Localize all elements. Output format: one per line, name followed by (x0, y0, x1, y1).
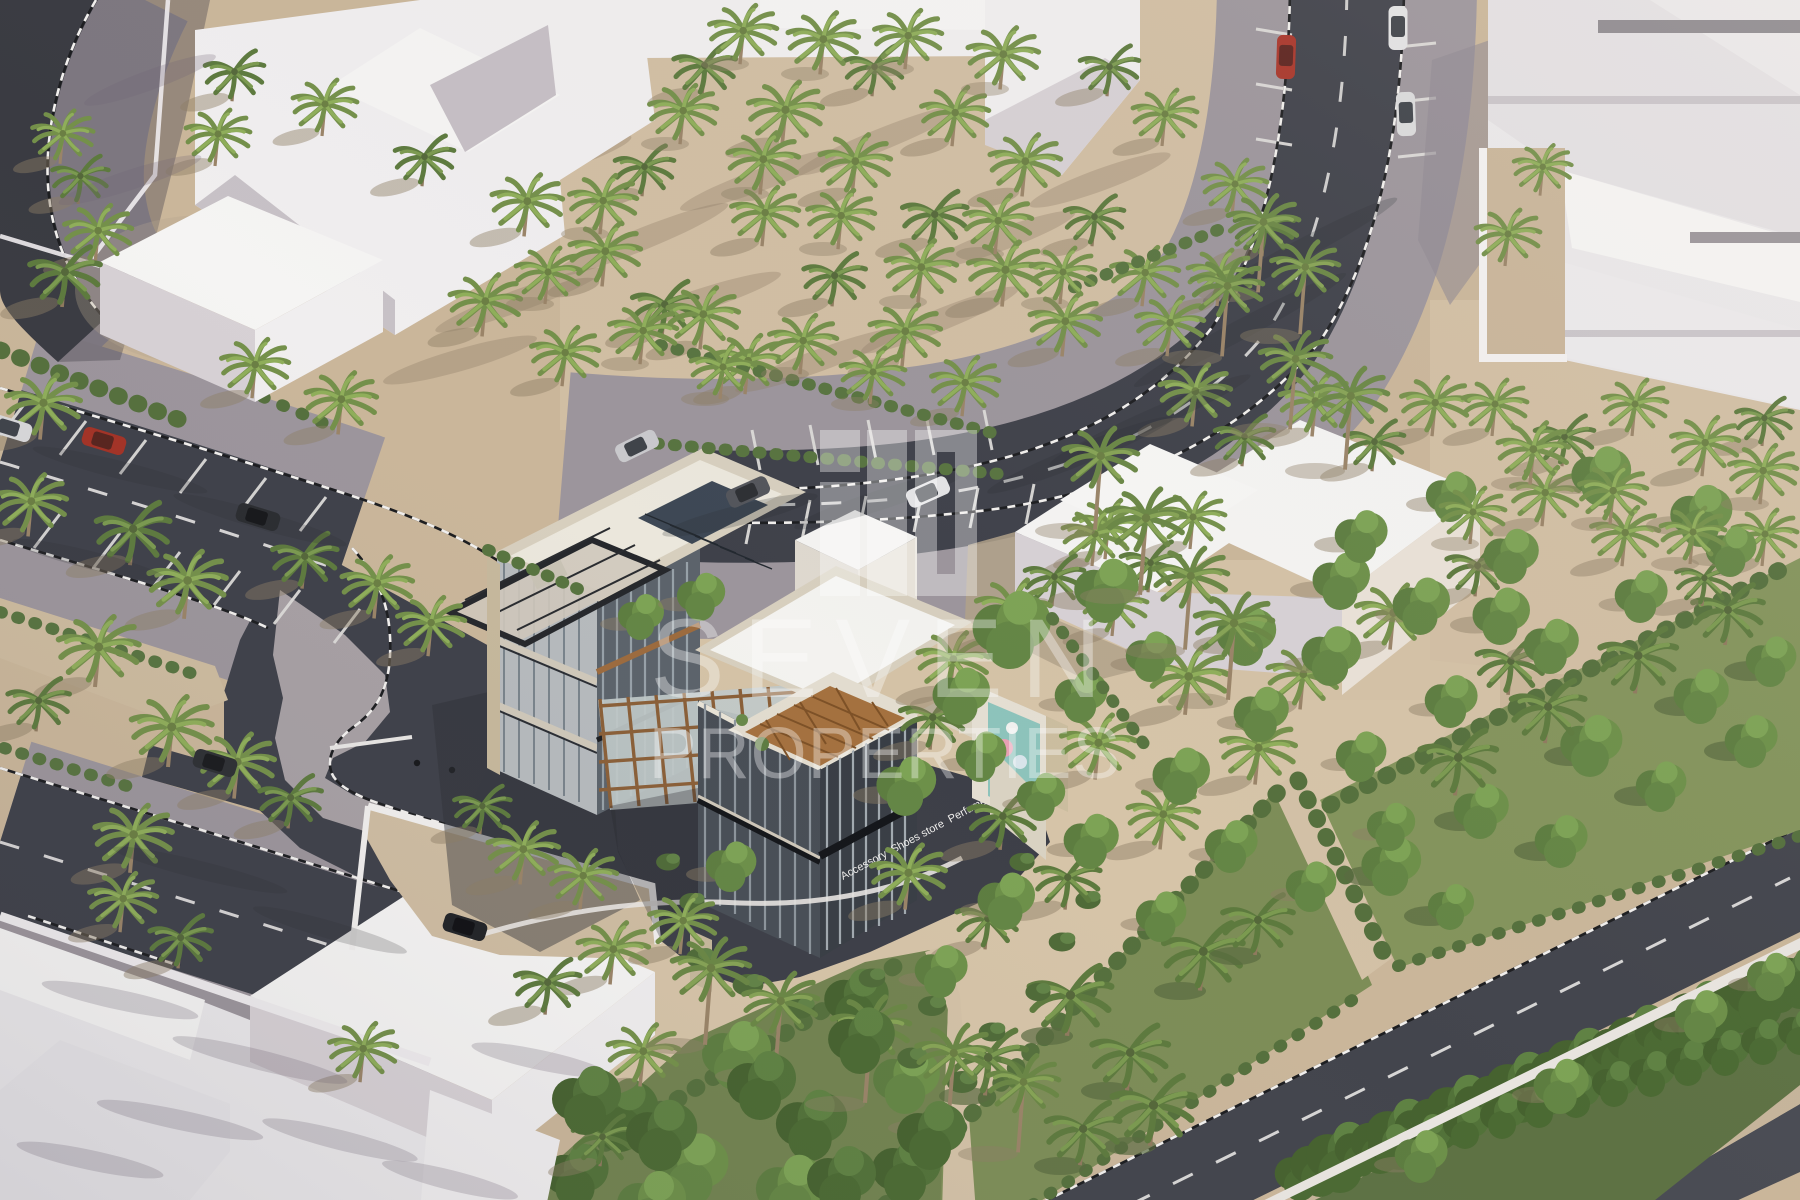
svg-text:PROPERTIES: PROPERTIES (649, 714, 1122, 794)
svg-text:SEVEN: SEVEN (650, 596, 1120, 721)
